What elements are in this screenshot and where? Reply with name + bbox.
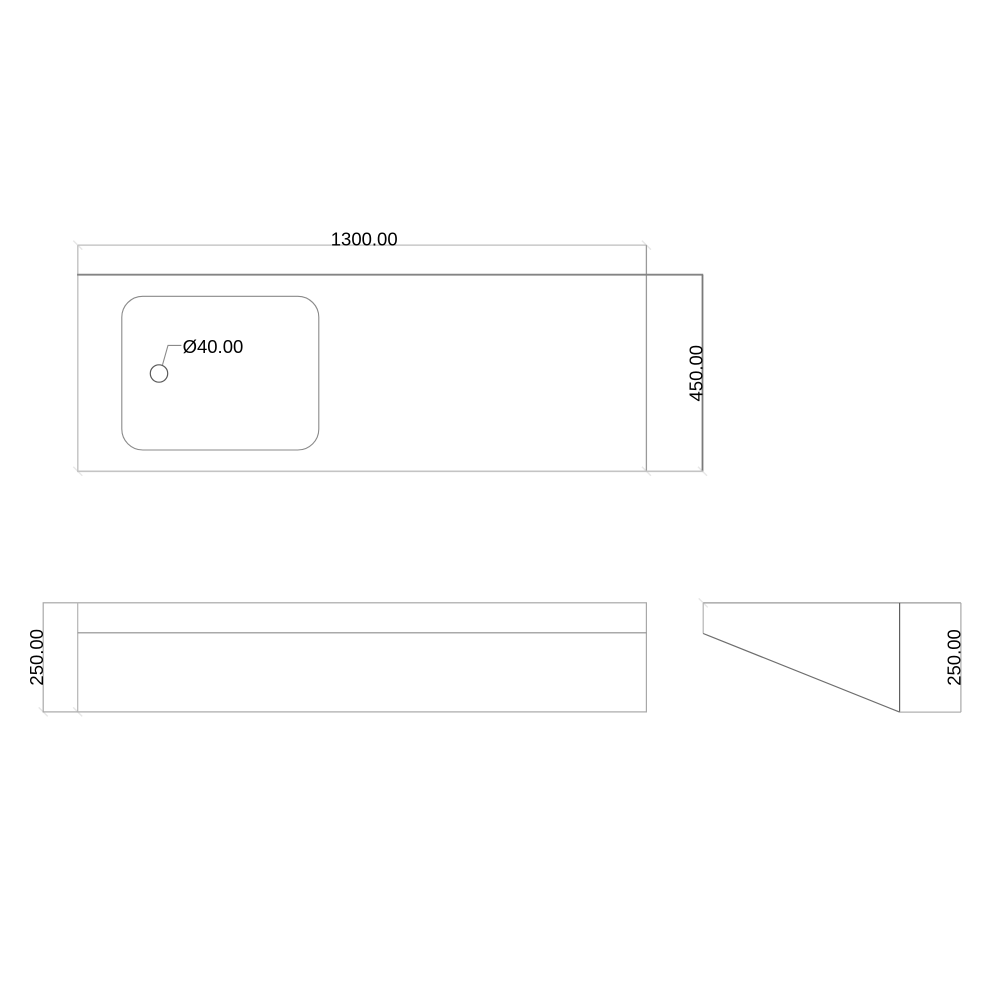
svg-text:1300.00: 1300.00	[331, 228, 398, 249]
svg-text:250.00: 250.00	[944, 629, 965, 686]
svg-text:Ø40.00: Ø40.00	[183, 336, 244, 357]
svg-text:250.00: 250.00	[26, 629, 47, 686]
svg-text:450.00: 450.00	[685, 345, 706, 402]
